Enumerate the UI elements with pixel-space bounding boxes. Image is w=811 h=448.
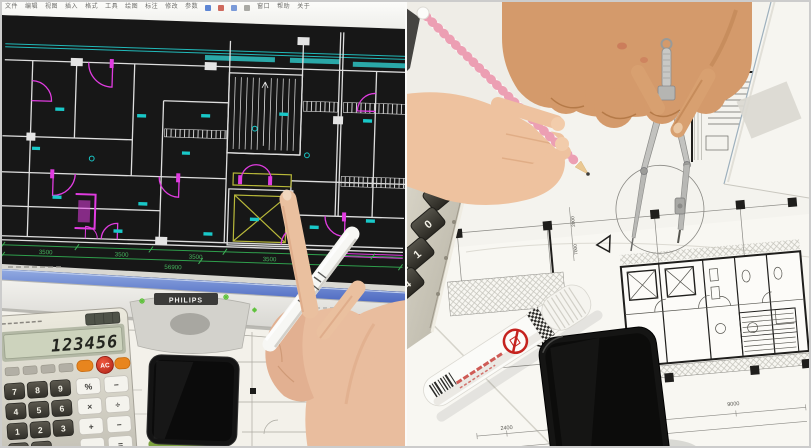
key-label: − — [113, 380, 119, 390]
key-label: − — [116, 419, 122, 429]
smartphone — [146, 354, 239, 446]
calculator: 123456 AC — [2, 307, 138, 446]
dim-label: 2400 — [500, 425, 513, 432]
photo-seam — [405, 2, 407, 446]
key-label: × — [87, 401, 93, 411]
cad-menu-item: 参数 — [185, 4, 198, 11]
dim-label-vertical: 7000 — [573, 244, 580, 255]
pencil-eraser-cap — [417, 7, 429, 19]
cad-menu-item: 插入 — [65, 4, 78, 11]
key-label: 9 — [58, 383, 64, 393]
key-label: 8 — [35, 385, 41, 395]
orange-key — [114, 357, 130, 369]
toolbar-icon-red — [218, 5, 224, 11]
pencil-graphite — [586, 172, 590, 176]
cad-menu-item: 编辑 — [25, 4, 38, 11]
toolbar-icon-blue — [205, 5, 211, 11]
right-photo-art: 2400 30700 9000 2000 7000 — [406, 2, 809, 446]
key-label: 5 — [36, 405, 42, 415]
right-photo-blueprint-desk: 2400 30700 9000 2000 7000 — [406, 2, 809, 446]
toolbar-icon-blue2 — [231, 5, 237, 11]
knuckle-mark — [617, 43, 627, 50]
cad-menu-item: 标注 — [145, 4, 158, 11]
photo-collage: 文件 编辑 视图 插入 格式 工具 绘图 标注 修改 参数 窗口 帮助 关于 — [0, 0, 811, 448]
digit-keys: 7 8 9 4 5 6 1 2 3 00 . — [4, 379, 75, 446]
key-label: 1 — [15, 427, 21, 437]
dim-label: 3500 — [189, 254, 204, 261]
cad-menu-item: 工具 — [105, 4, 118, 11]
cad-menu-item: 关于 — [297, 4, 310, 11]
knuckle-mark — [640, 57, 648, 63]
cad-menu-item: 帮助 — [277, 4, 290, 11]
dim-total-label: 56900 — [164, 264, 182, 272]
cad-menu-item: 修改 — [165, 4, 178, 11]
dim-label-vertical: 2000 — [570, 216, 577, 227]
dim-label: 3500 — [263, 256, 278, 263]
key-label: % — [84, 381, 93, 392]
orange-key — [77, 360, 94, 372]
dim-label: 3500 — [39, 249, 54, 256]
solar-panel — [85, 312, 120, 325]
key-label: 4 — [13, 407, 19, 417]
key-label: = — [118, 439, 124, 446]
key-label: 2 — [38, 425, 44, 435]
cad-menu-item: 文件 — [5, 4, 18, 11]
left-photo-cad-monitor: 文件 编辑 视图 插入 格式 工具 绘图 标注 修改 参数 窗口 帮助 关于 — [2, 2, 406, 446]
key-label: 7 — [12, 387, 18, 397]
cad-menu-item: 视图 — [45, 4, 58, 11]
monitor-brand-label: PHILIPS — [169, 298, 203, 305]
cad-menu-item: 绘图 — [125, 4, 138, 11]
toolbar-icon-gray — [244, 5, 250, 11]
dim-label: 9000 — [727, 401, 740, 408]
left-photo-art: 3500 3500 3500 3500 56900 — [2, 2, 406, 446]
key-label: + — [88, 421, 94, 431]
dim-label: 3500 — [115, 251, 130, 258]
ac-key-label: AC — [100, 362, 110, 370]
cad-menu-item: 窗口 — [257, 4, 270, 11]
key-label: 6 — [59, 403, 65, 413]
cad-menu-item: 格式 — [85, 4, 98, 11]
key-label: 3 — [61, 423, 67, 433]
stand-hub — [170, 313, 210, 335]
compass-hinge — [641, 168, 648, 175]
